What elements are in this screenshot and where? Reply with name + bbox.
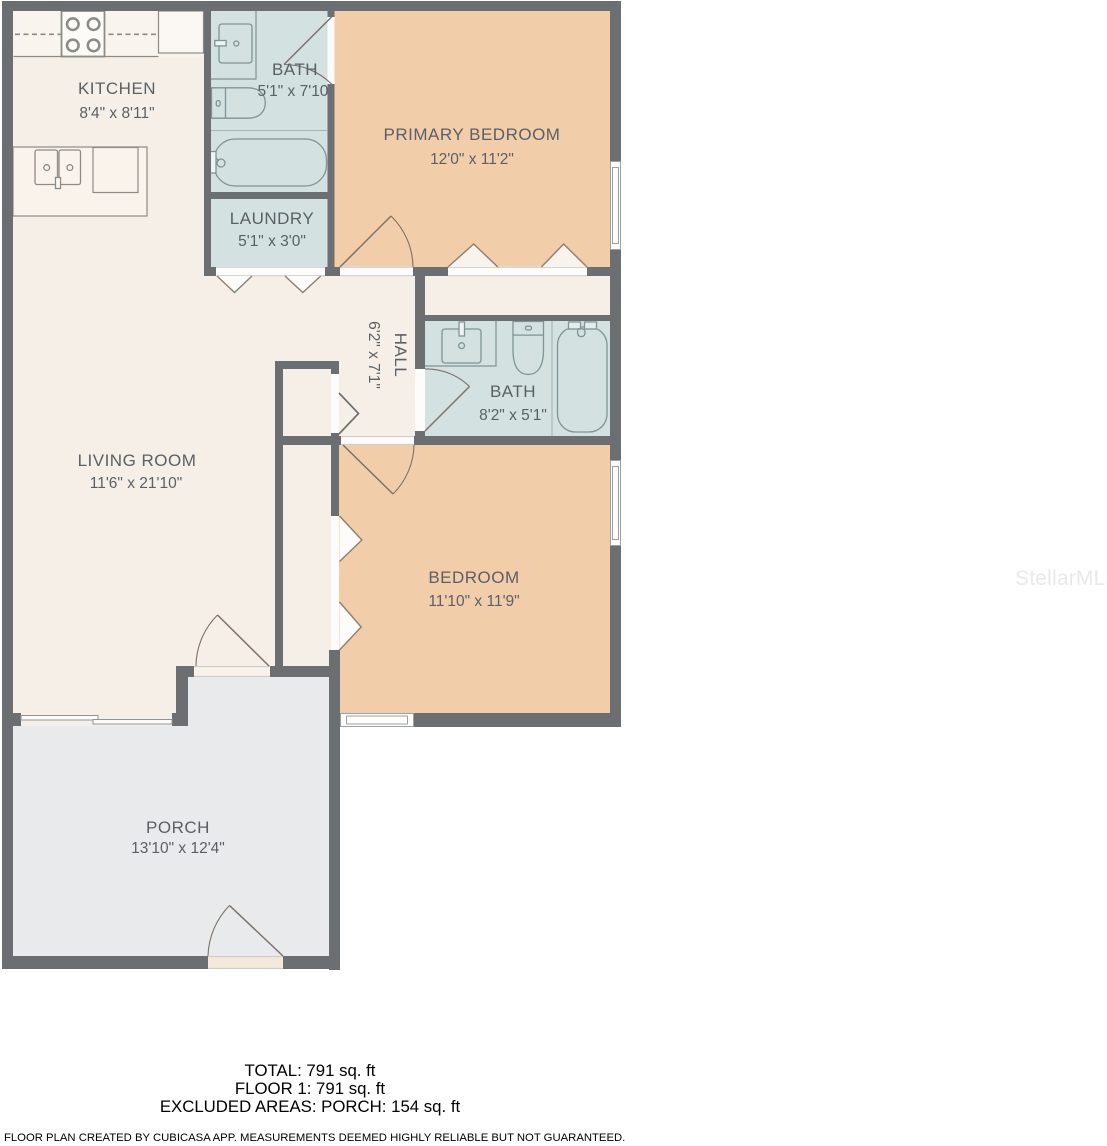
svg-text:FLOOR 1: 791 sq. ft: FLOOR 1: 791 sq. ft (235, 1079, 386, 1098)
svg-text:EXCLUDED AREAS: PORCH: 154 sq.: EXCLUDED AREAS: PORCH: 154 sq. ft (160, 1097, 461, 1116)
svg-text:LAUNDRY: LAUNDRY (230, 209, 314, 228)
svg-text:StellarMLS: StellarMLS (1015, 567, 1107, 590)
svg-text:BEDROOM: BEDROOM (428, 568, 519, 587)
svg-text:11'10" x 11'9": 11'10" x 11'9" (428, 593, 519, 610)
svg-text:12'0" x 11'2": 12'0" x 11'2" (430, 151, 514, 168)
svg-text:11'6" x 21'10": 11'6" x 21'10" (90, 475, 182, 492)
svg-text:BATH: BATH (272, 60, 318, 79)
svg-text:8'4" x 8'11": 8'4" x 8'11" (79, 105, 154, 122)
svg-text:13'10" x 12'4": 13'10" x 12'4" (131, 840, 225, 857)
svg-text:BATH: BATH (490, 382, 536, 401)
svg-text:KITCHEN: KITCHEN (78, 79, 156, 98)
svg-text:8'2" x 5'1": 8'2" x 5'1" (479, 407, 547, 424)
svg-text:TOTAL: 791 sq. ft: TOTAL: 791 sq. ft (245, 1061, 376, 1080)
svg-text:PORCH: PORCH (146, 818, 210, 837)
svg-text:PRIMARY BEDROOM: PRIMARY BEDROOM (384, 125, 561, 144)
svg-text:6'2" x 7'1": 6'2" x 7'1" (365, 321, 382, 389)
svg-text:HALL: HALL (391, 333, 410, 378)
svg-text:LIVING ROOM: LIVING ROOM (78, 451, 197, 470)
svg-text:5'1" x 7'10: 5'1" x 7'10 (258, 83, 329, 100)
svg-text:5'1" x 3'0": 5'1" x 3'0" (238, 233, 306, 250)
svg-text:FLOOR PLAN CREATED BY CUBICASA: FLOOR PLAN CREATED BY CUBICASA APP. MEAS… (4, 1132, 625, 1144)
